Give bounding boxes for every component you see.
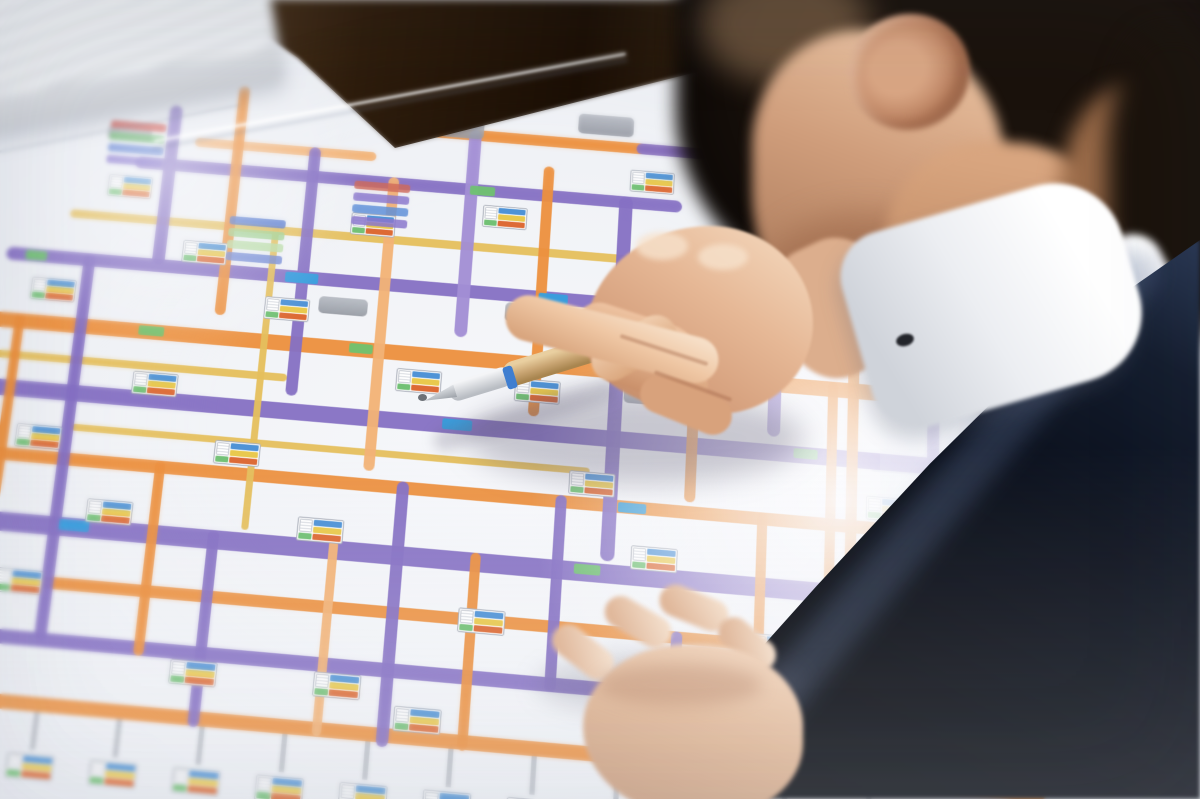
legend-color-bar [353,192,409,205]
tag-stripe [187,785,217,794]
tag-header-cell [134,373,148,387]
tag-stripe-group [312,520,342,542]
tag-green-cell [265,311,278,318]
equipment-tag [170,767,221,797]
line-label-chip [138,325,165,337]
tag-stripe [329,689,358,698]
tag-stripe [411,385,439,393]
legend-cluster [351,180,411,228]
drop-line [446,749,454,788]
tag-green-cell [632,561,646,568]
equipment-tag [85,498,134,526]
tag-stripe [229,457,258,465]
tag-header-cell [171,661,186,676]
tag-green-cell [632,184,645,190]
equipment-tag [338,782,388,799]
tag-stripe [279,312,307,320]
tag-header-cell [632,547,646,561]
equipment-tag [392,706,442,735]
tag-green-cell [395,723,409,731]
tag-green-cell [0,583,10,590]
tag-stripe-group [187,770,218,794]
tag-stripe [584,487,612,495]
tag-green-cell [256,792,270,799]
photo-scene [0,0,1200,799]
pipe-segment [133,460,166,656]
drop-line [195,726,204,765]
tag-header-cell [632,172,645,185]
equipment-tag [457,607,506,636]
legend-cluster [106,120,167,167]
drop-line [279,734,288,773]
equipment-tag [168,659,218,688]
line-label-chip [349,343,373,354]
tag-stripe [101,515,130,523]
tag-stripe-group [101,501,131,523]
pen-tip-point [418,394,427,401]
equipment-tag [263,296,310,322]
pipe-segment [195,138,377,162]
equipment-tag [630,170,675,195]
pipe-segment [457,552,481,751]
tag-green-cell [170,675,184,682]
tag-header-cell [484,207,497,220]
tag-green-cell [87,514,101,521]
tag-header-cell [460,610,474,624]
tag-green-cell [109,188,122,194]
tag-stripe-group [279,299,308,320]
equipment-tag [421,789,471,799]
tag-header-cell [315,673,330,688]
tag-stripe-group [147,374,177,395]
tag-stripe [45,293,73,301]
pipe-segment [0,313,25,708]
tag-stripe-group [645,173,673,193]
tag-stripe-group [30,426,60,448]
knuckle-highlight [698,244,748,270]
knuckle-highlight [636,232,688,260]
legend-color-bar [352,204,409,217]
equipment-tag [87,759,138,789]
equipment-tag [312,671,362,700]
tag-stripe-group [354,785,385,799]
tag-header-cell [257,777,272,792]
tag-stripe-group [438,793,469,799]
equipment-tag [630,545,678,573]
tag-stripe [439,793,469,799]
legend-color-bar [106,155,162,168]
tag-stripe [497,221,524,229]
equipment-block [578,113,634,137]
tag-header-cell [110,176,124,189]
tag-stripe-group [10,570,41,593]
tag-green-cell [314,688,328,695]
legend-color-bar [229,216,286,229]
tag-stripe-group [104,763,136,787]
drop-line [112,719,122,757]
resting-knuckle-shadow [598,664,762,706]
tag-stripe-group [185,662,216,685]
tag-green-cell [215,456,229,463]
drop-line [362,741,370,780]
equipment-tag [131,371,179,398]
tag-stripe [122,190,149,198]
tag-header-cell [424,792,439,799]
drop-line [529,756,537,795]
legend-color-bar [225,252,282,265]
tag-stripe-group [122,177,151,197]
tag-green-cell [16,439,30,446]
tag-header-cell [216,442,230,456]
equipment-tag [395,368,442,395]
tag-stripe [147,387,175,395]
tag-stripe-group [271,778,302,799]
tag-header-cell [398,370,412,383]
tag-stripe-group [411,371,440,392]
tag-stripe [646,563,675,572]
tag-header-cell [0,569,12,583]
tag-stripe [365,228,393,236]
tag-stripe-group [329,675,360,698]
equipment-tag [14,423,63,450]
tag-green-cell [32,292,45,299]
tag-stripe-group [409,709,440,733]
equipment-tag [482,205,528,231]
tag-stripe [10,585,39,594]
equipment-tag [213,440,261,467]
pipe-segment [544,495,567,693]
tag-stripe-group [197,243,226,264]
tag-stripe [645,185,672,193]
tag-header-cell [17,425,32,439]
legend-color-bar [227,240,284,253]
tag-header-cell [32,279,46,292]
tag-stripe [473,625,502,634]
tag-stripe [312,534,341,542]
tag-stripe [21,770,51,779]
equipment-tag [4,752,55,782]
line-label-chip [470,185,496,196]
tag-green-cell [516,393,529,400]
legend-color-bar [228,228,285,241]
tag-stripe [185,677,214,686]
tag-header-cell [184,242,198,255]
tag-stripe-group [646,549,675,572]
tag-green-cell [173,784,187,792]
equipment-tag [181,240,228,266]
tag-stripe [30,440,59,448]
tag-stripe [409,724,439,733]
tag-green-cell [570,486,583,493]
keyboard-keys [0,0,271,99]
tag-stripe [104,778,134,787]
drop-line [30,712,40,750]
tag-green-cell [459,624,473,631]
tag-header-cell [395,708,410,723]
tag-stripe [197,256,225,264]
tag-green-cell [397,383,410,390]
tag-green-cell [89,777,103,785]
tag-stripe-group [45,280,75,301]
tag-green-cell [352,227,365,234]
tag-green-cell [298,532,312,539]
pipe-segment [187,530,220,728]
tag-green-cell [484,219,497,226]
tag-header-cell [340,784,355,799]
legend-cluster [225,216,286,265]
pipe-segment [454,130,482,338]
equipment-tag [29,277,77,303]
tag-header-cell [90,762,105,777]
equipment-tag [254,774,304,799]
equipment-tag [0,567,44,595]
tag-stripe-group [473,611,503,634]
tag-green-cell [183,255,196,262]
tag-header-cell [266,298,280,311]
tag-header-cell [7,754,22,769]
tag-header-cell [174,769,189,784]
equipment-tag [107,174,154,199]
pipe-segment [214,86,250,315]
tag-stripe-group [21,756,53,780]
line-label-chip [25,250,48,261]
tag-stripe-group [229,443,259,465]
equipment-block [318,296,368,317]
equipment-tag [296,516,345,544]
tag-green-cell [6,769,20,777]
pipe-segment [824,381,839,591]
tag-green-cell [133,386,147,393]
tag-header-cell [88,500,103,514]
tag-stripe-group [497,208,525,228]
tag-header-cell [299,518,313,532]
pipe-segment [311,540,338,736]
